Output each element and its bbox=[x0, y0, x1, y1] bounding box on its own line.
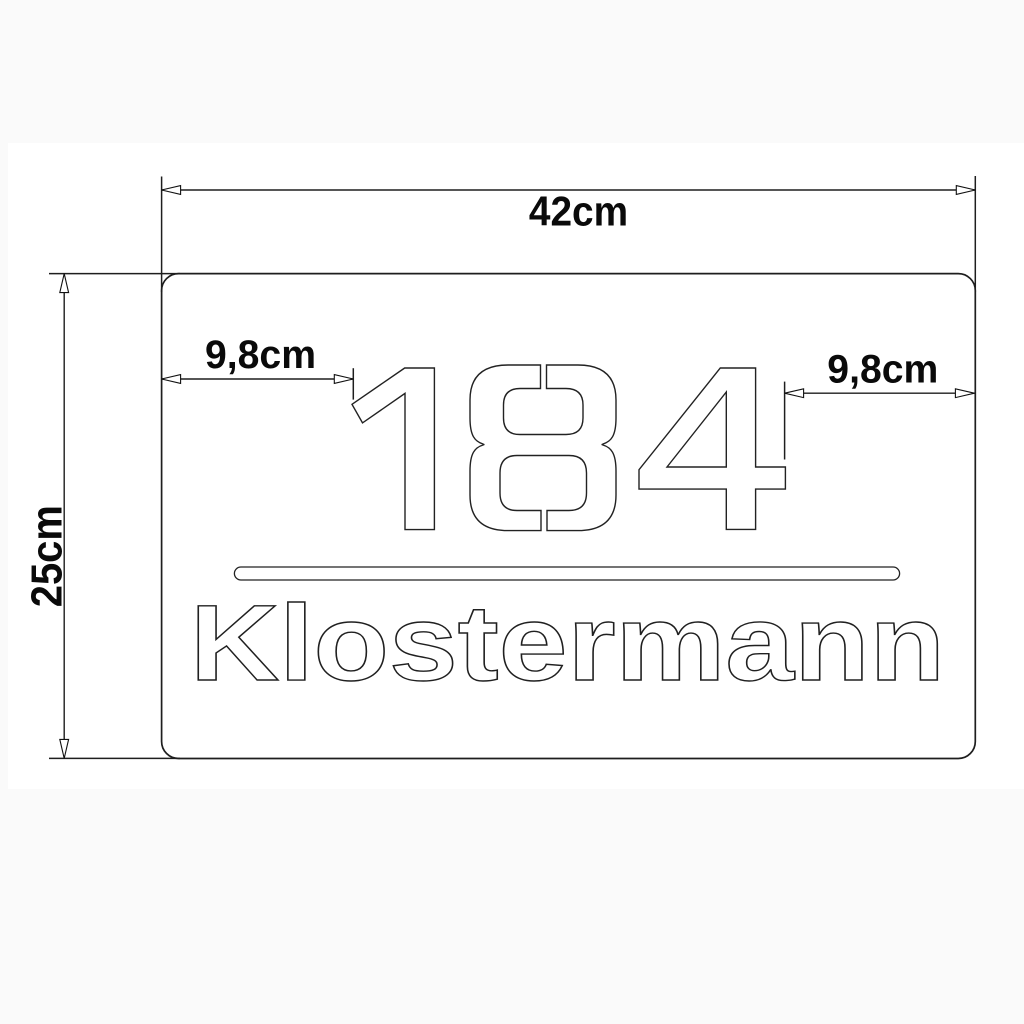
svg-text:42cm: 42cm bbox=[529, 187, 628, 234]
svg-text:Klostermann: Klostermann bbox=[190, 582, 945, 703]
svg-text:9,8cm: 9,8cm bbox=[205, 333, 316, 377]
svg-text:25cm: 25cm bbox=[22, 505, 71, 607]
svg-text:9,8cm: 9,8cm bbox=[827, 348, 938, 392]
